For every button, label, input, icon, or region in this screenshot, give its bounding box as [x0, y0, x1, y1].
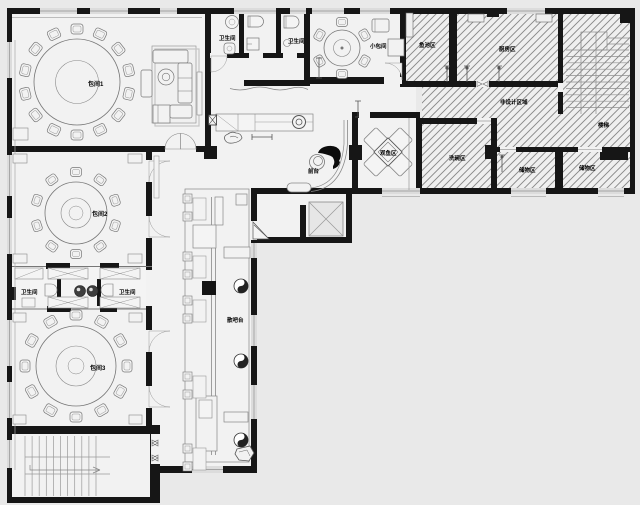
- svg-text:储物区: 储物区: [578, 164, 596, 172]
- svg-text:卫生间: 卫生间: [288, 37, 305, 45]
- svg-text:包间2: 包间2: [92, 210, 108, 218]
- svg-text:小包间: 小包间: [370, 42, 387, 50]
- svg-text:散吧台: 散吧台: [227, 316, 244, 324]
- svg-text:鱼池区: 鱼池区: [419, 41, 436, 49]
- svg-text:洗碗区: 洗碗区: [449, 154, 466, 162]
- svg-text:储物区: 储物区: [518, 166, 536, 174]
- svg-text:卫生间: 卫生间: [219, 34, 236, 42]
- svg-text:包间3: 包间3: [90, 364, 106, 372]
- svg-text:前台: 前台: [308, 167, 320, 175]
- svg-text:非设计区域: 非设计区域: [500, 98, 528, 106]
- svg-text:卫生间: 卫生间: [119, 288, 136, 296]
- svg-text:包间1: 包间1: [88, 80, 104, 88]
- svg-text:卫生间: 卫生间: [21, 288, 38, 296]
- svg-text:厨房区: 厨房区: [499, 45, 516, 53]
- svg-text:观鱼区: 观鱼区: [380, 149, 397, 157]
- svg-text:楼梯: 楼梯: [598, 121, 610, 129]
